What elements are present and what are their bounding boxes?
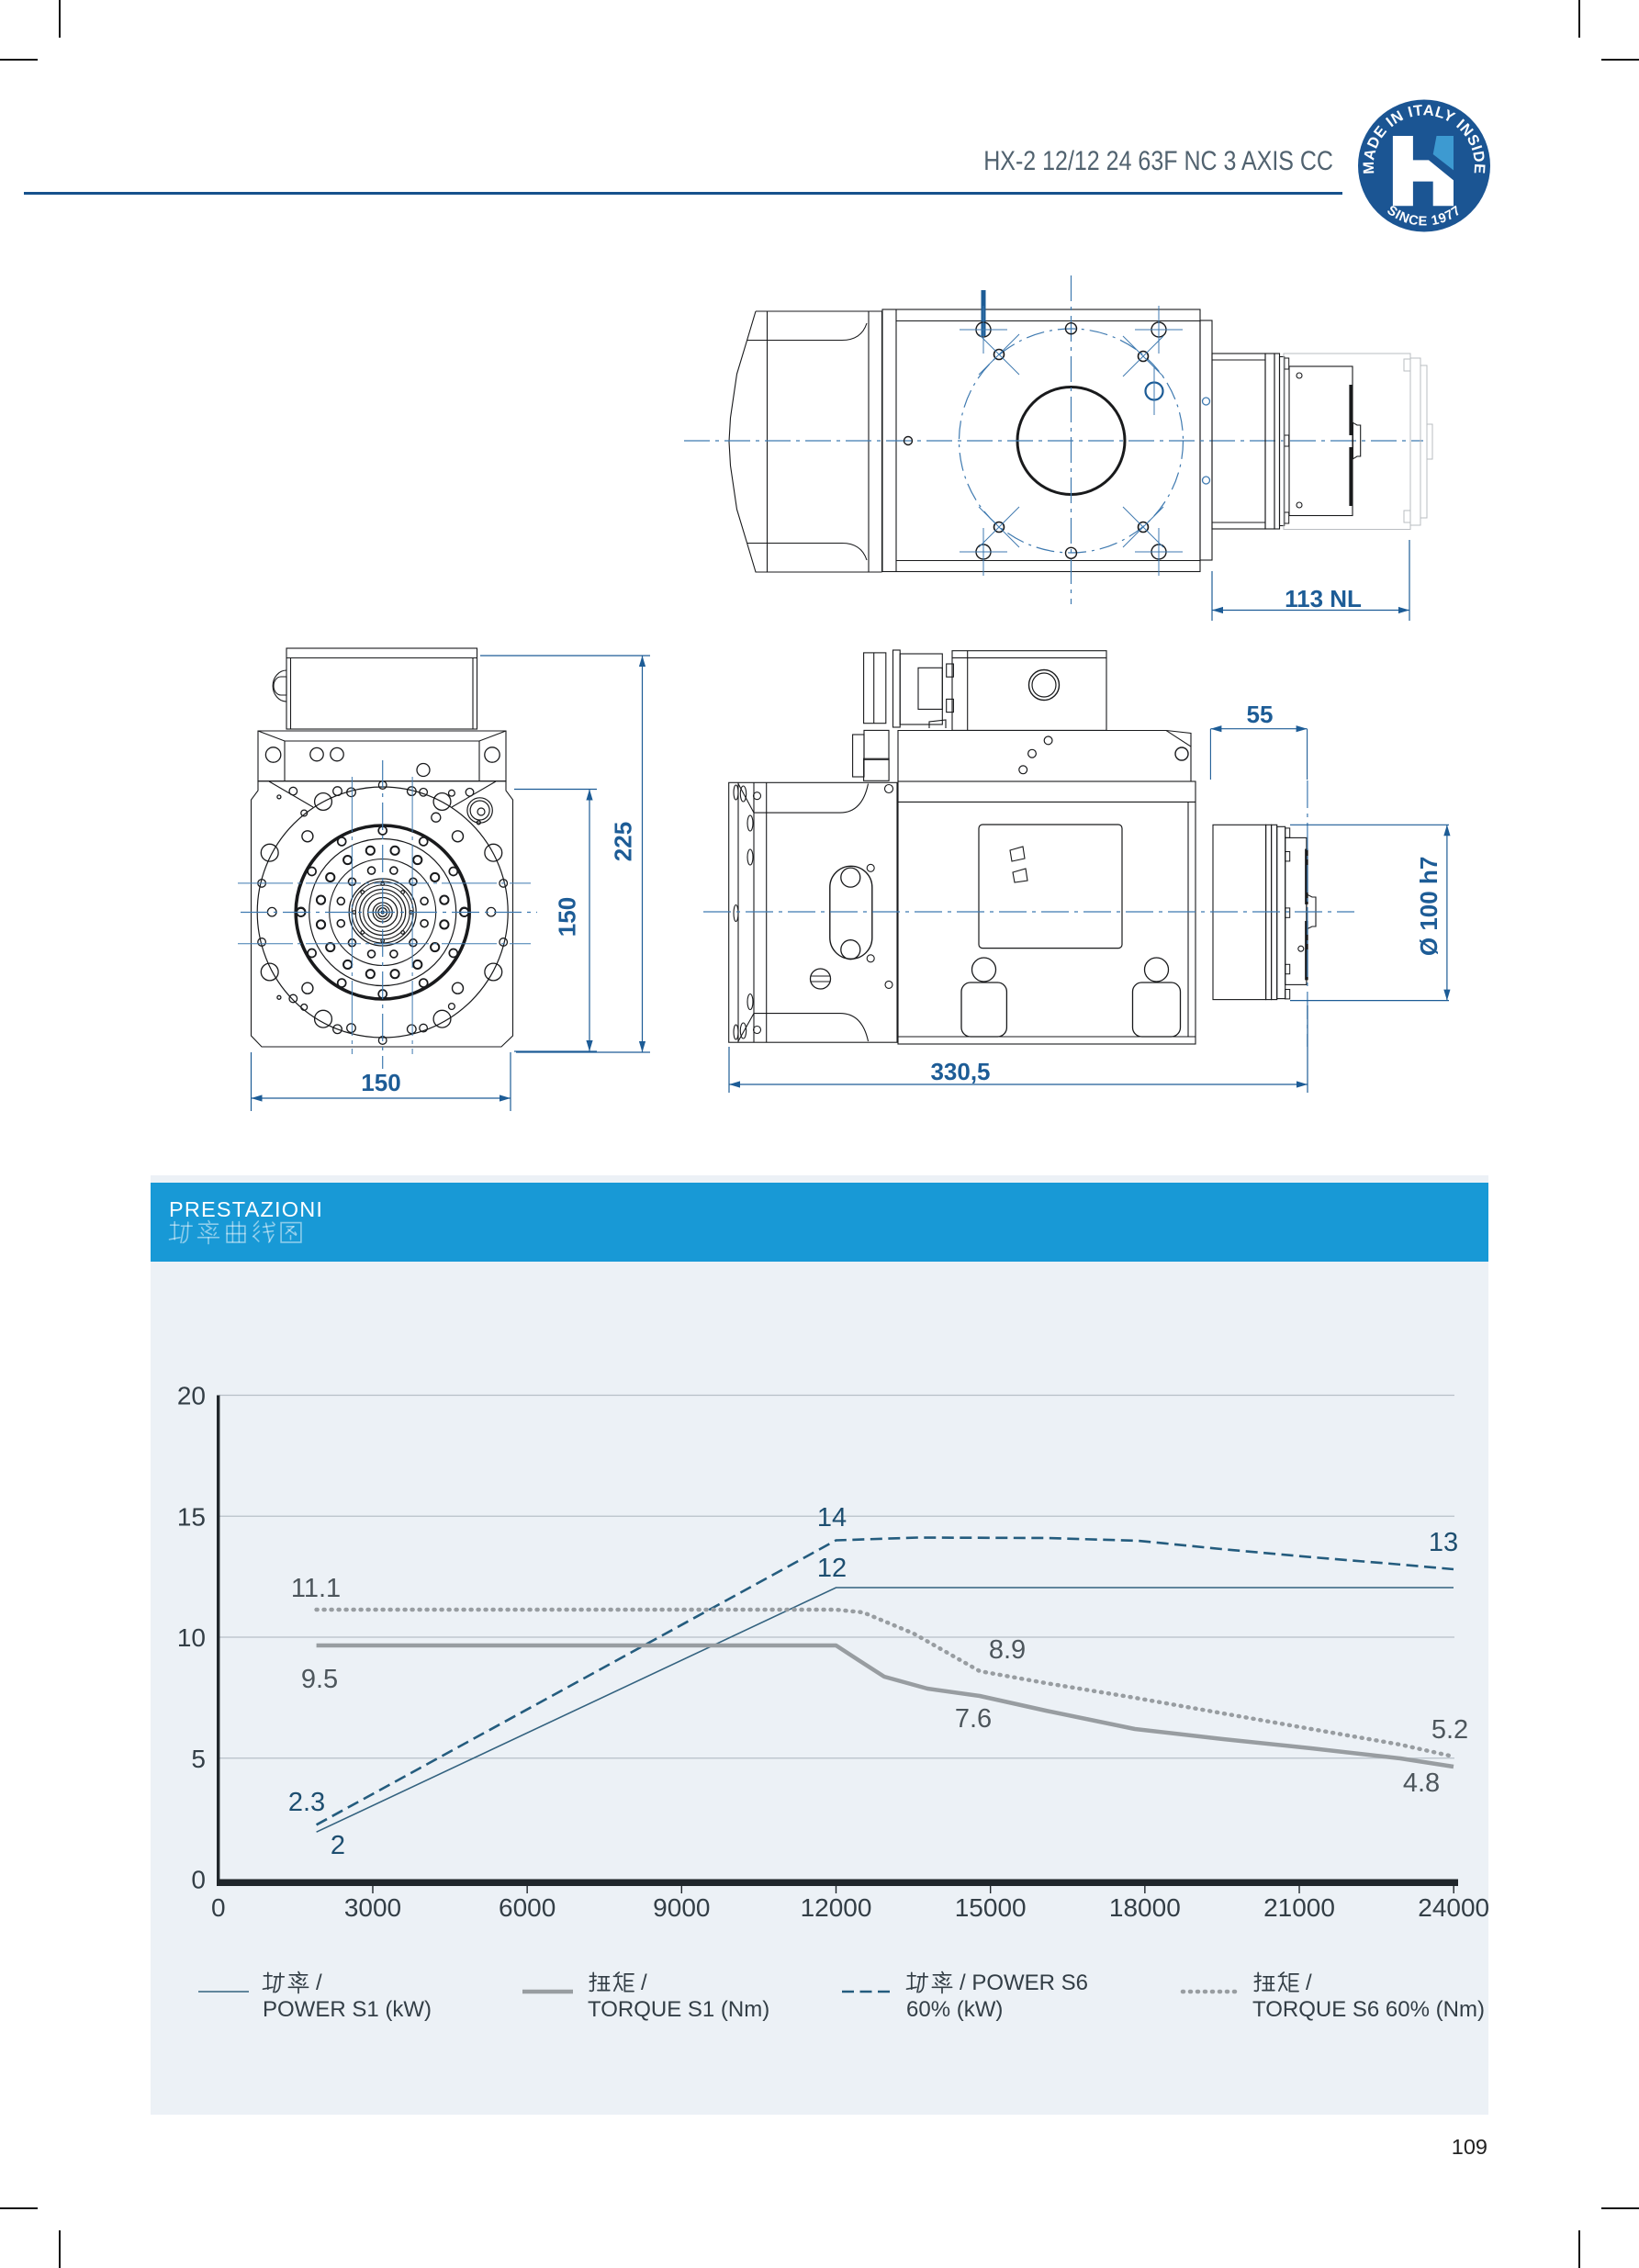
svg-text:6000: 6000 xyxy=(499,1893,556,1922)
svg-text:5: 5 xyxy=(191,1745,206,1773)
svg-text:13: 13 xyxy=(1429,1528,1458,1557)
svg-text:4.8: 4.8 xyxy=(1403,1768,1440,1798)
svg-text:113 NL: 113 NL xyxy=(1285,585,1362,612)
svg-text:/: / xyxy=(1306,1970,1312,1995)
svg-text:225: 225 xyxy=(610,822,637,861)
svg-text:15000: 15000 xyxy=(955,1893,1027,1922)
svg-text:3000: 3000 xyxy=(344,1893,401,1922)
svg-text:/: / xyxy=(316,1970,322,1995)
svg-text:150: 150 xyxy=(361,1069,400,1096)
svg-text:11.1: 11.1 xyxy=(291,1574,341,1603)
svg-text:0: 0 xyxy=(211,1893,226,1922)
svg-text:10: 10 xyxy=(177,1623,206,1652)
svg-text:TORQUE S1 (Nm): TORQUE S1 (Nm) xyxy=(588,1997,769,2022)
svg-text:12: 12 xyxy=(817,1554,847,1583)
svg-text:2.3: 2.3 xyxy=(288,1788,325,1817)
svg-text:/: / xyxy=(641,1970,647,1995)
svg-text:330,5: 330,5 xyxy=(930,1058,990,1085)
svg-text:8.9: 8.9 xyxy=(989,1635,1026,1665)
svg-text:2: 2 xyxy=(331,1831,345,1860)
svg-text:TORQUE S6 60% (Nm): TORQUE S6 60% (Nm) xyxy=(1252,1997,1485,2022)
svg-text:60% (kW): 60% (kW) xyxy=(906,1997,1003,2022)
svg-text:9000: 9000 xyxy=(653,1893,710,1922)
svg-text:14: 14 xyxy=(817,1503,847,1533)
svg-text:24000: 24000 xyxy=(1418,1893,1489,1922)
svg-text:9.5: 9.5 xyxy=(301,1665,338,1694)
svg-text:12000: 12000 xyxy=(801,1893,872,1922)
svg-text:0: 0 xyxy=(191,1866,206,1894)
svg-text:5.2: 5.2 xyxy=(1431,1715,1468,1745)
svg-text:Ø 100 h7: Ø 100 h7 xyxy=(1415,857,1443,956)
svg-text:21000: 21000 xyxy=(1263,1893,1335,1922)
svg-text:POWER S1 (kW): POWER S1 (kW) xyxy=(263,1997,432,2022)
svg-text:150: 150 xyxy=(554,897,581,937)
svg-text:7.6: 7.6 xyxy=(955,1704,992,1734)
svg-text:18000: 18000 xyxy=(1109,1893,1181,1922)
svg-text:55: 55 xyxy=(1247,701,1274,728)
svg-text:20: 20 xyxy=(177,1382,206,1410)
svg-text:/ POWER S6: / POWER S6 xyxy=(960,1970,1088,1995)
svg-text:15: 15 xyxy=(177,1502,206,1531)
